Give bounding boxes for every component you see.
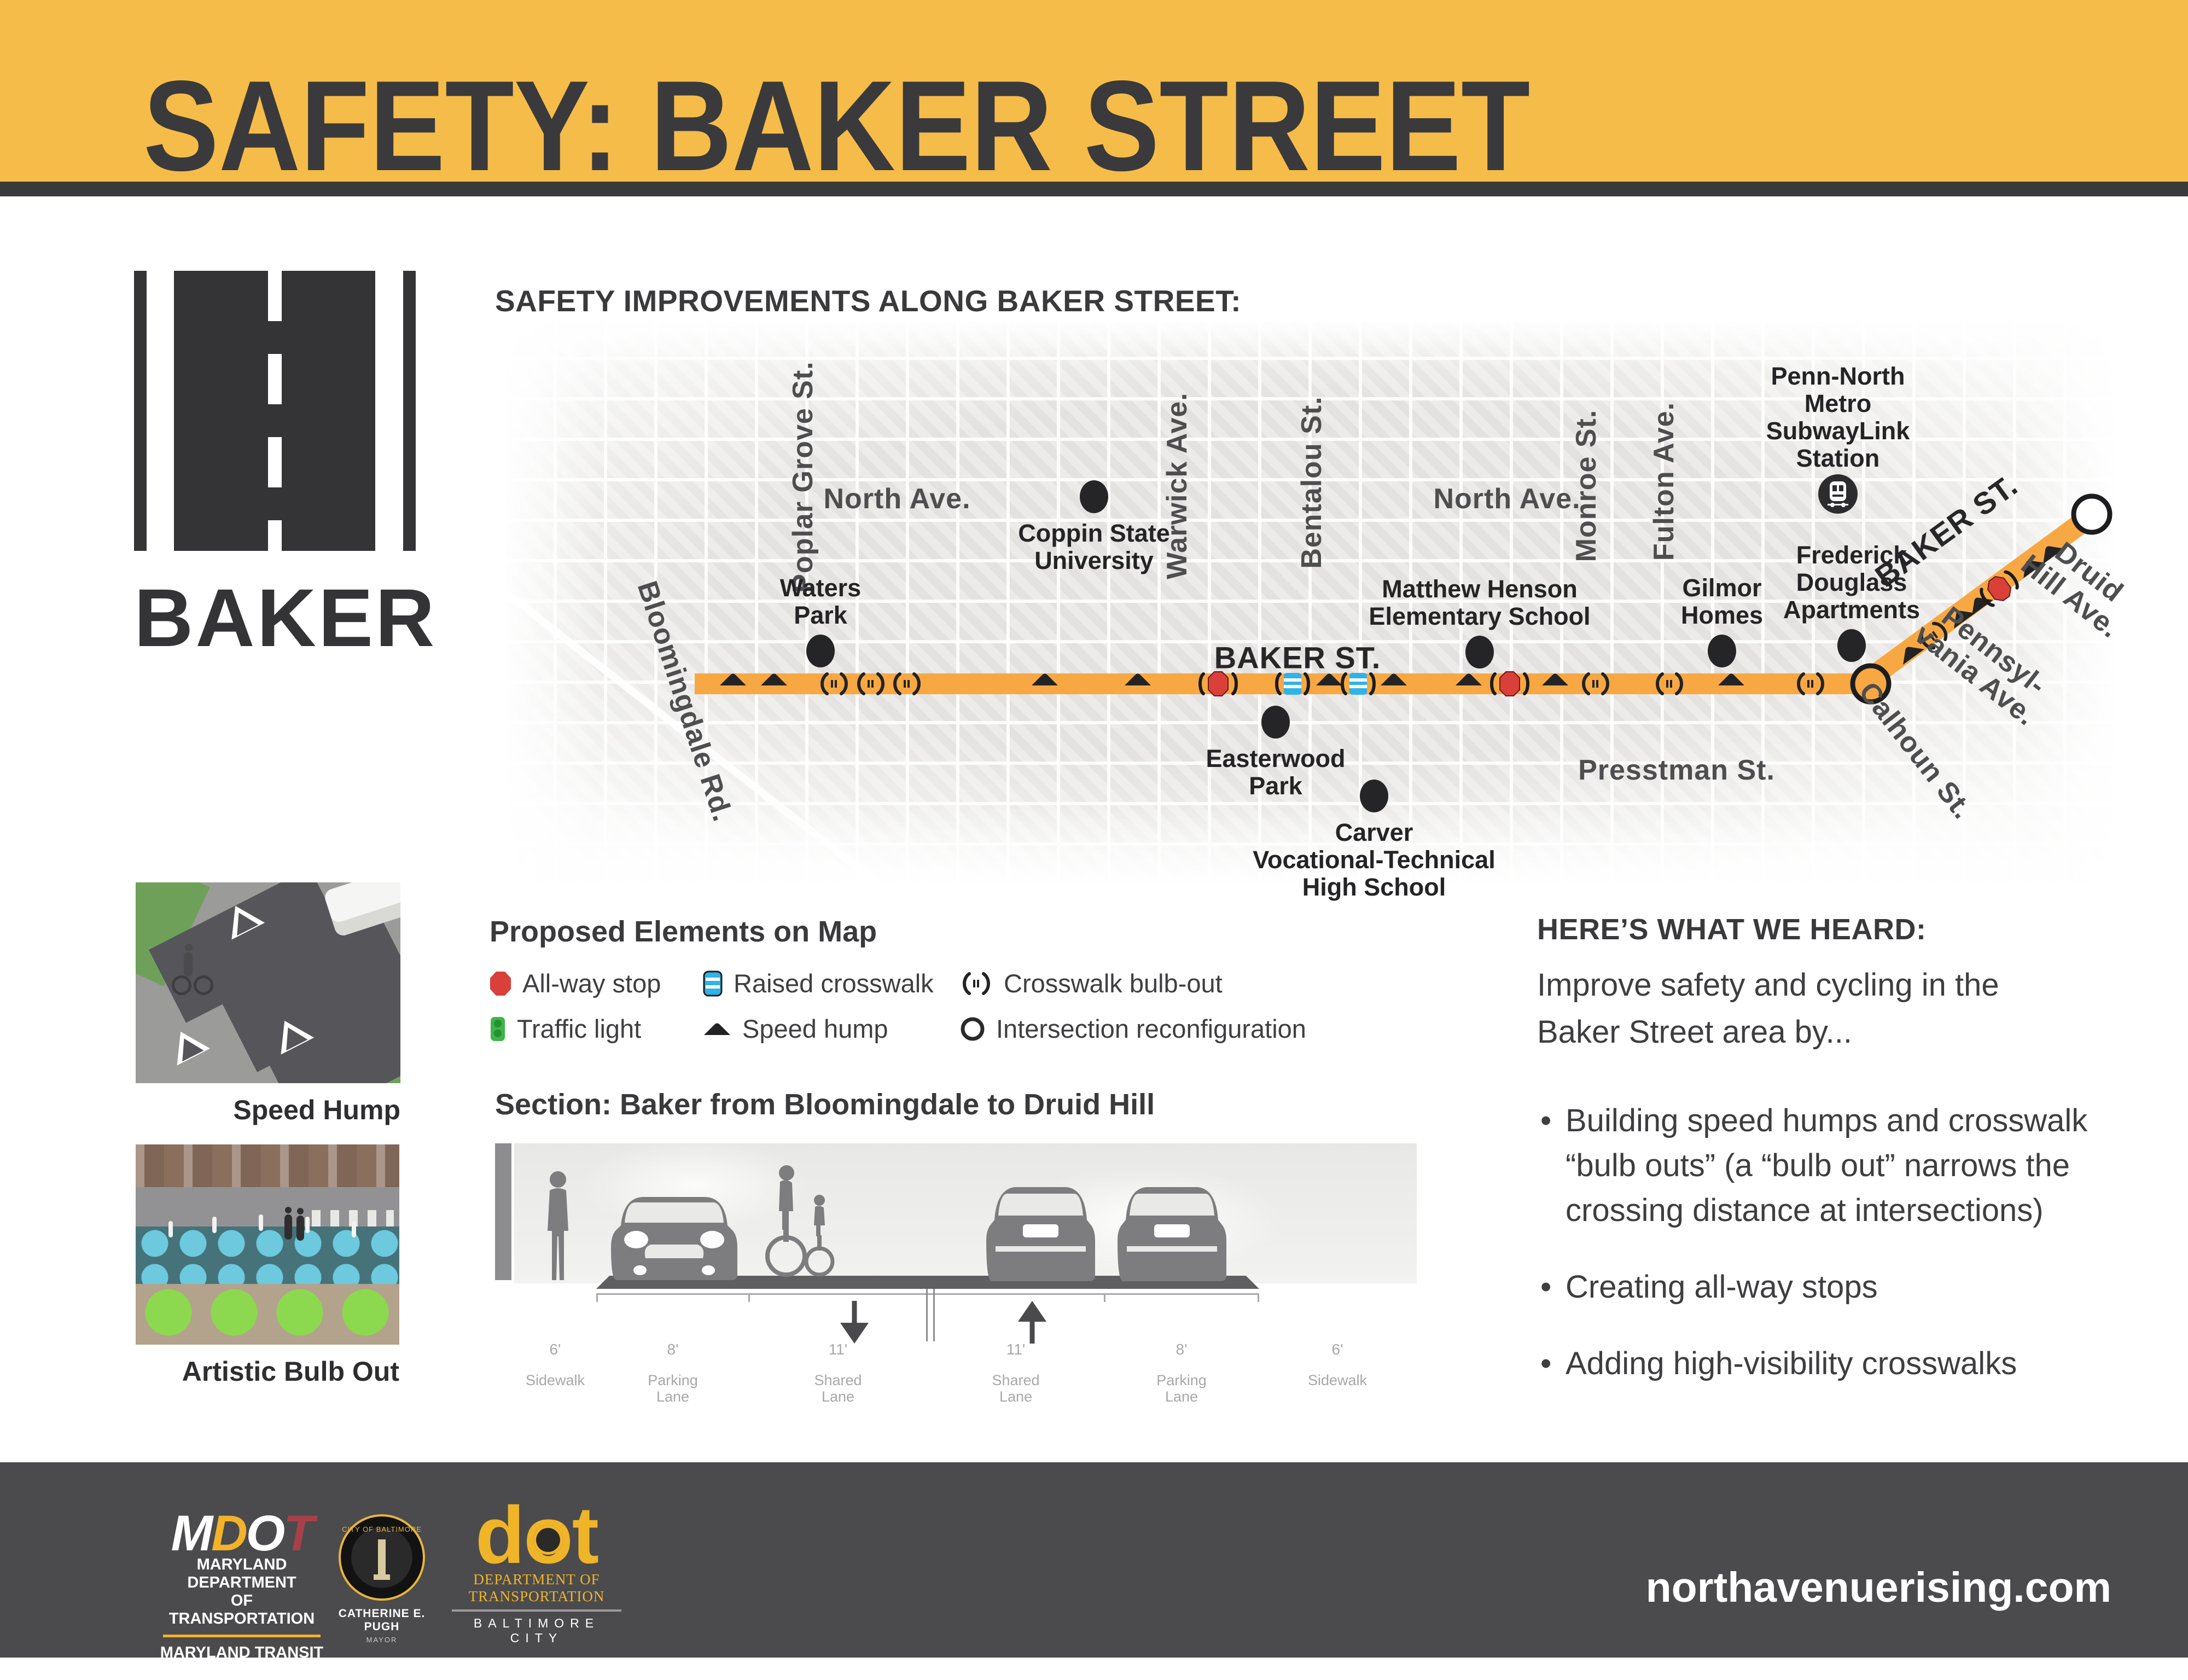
legend-label: Intersection reconfiguration bbox=[996, 1014, 1306, 1044]
green-dot-sidewalk bbox=[136, 1284, 399, 1345]
chevron-marking bbox=[164, 1023, 210, 1065]
all-way-stop-icon bbox=[490, 971, 511, 996]
footer-band bbox=[0, 1462, 2188, 1658]
legend-label: Raised crosswalk bbox=[734, 968, 934, 998]
city-seal-icon: CITY OF BALTIMORE bbox=[339, 1514, 425, 1601]
traffic-light-icon bbox=[490, 1016, 506, 1042]
lane-label: 11'Shared Lane bbox=[992, 1341, 1039, 1405]
dot-city-label: BALTIMORE CITY bbox=[452, 1616, 621, 1646]
lane-label: 6'Sidewalk bbox=[526, 1341, 585, 1388]
bollard bbox=[212, 1217, 217, 1233]
heard-intro: Improve safety and cycling in the Baker … bbox=[1537, 962, 2079, 1056]
raised-crosswalk-icon bbox=[703, 970, 723, 997]
baker-road-logo: BAKER bbox=[134, 271, 416, 659]
parked-car-silhouette bbox=[610, 1193, 738, 1283]
heard-bullet: Building speed humps and crosswalk “bulb… bbox=[1537, 1098, 2093, 1233]
mdot-logo: MDOT MARYLAND DEPARTMENTOF TRANSPORTATIO… bbox=[160, 1511, 324, 1680]
mayor-name: CATHERINE E. PUGH bbox=[338, 1607, 426, 1634]
buildings bbox=[136, 1144, 399, 1187]
artistic-bulb-out-photo bbox=[136, 1144, 399, 1345]
road-edge-line-right bbox=[403, 271, 416, 551]
road-center-dash bbox=[268, 271, 282, 551]
mdot-department-label: MARYLAND DEPARTMENTOF TRANSPORTATION bbox=[160, 1556, 324, 1628]
bike-wheel bbox=[172, 975, 191, 995]
direction-arrow-down bbox=[838, 1301, 871, 1344]
legend-items: All-way stopRaised crosswalkCrosswalk bu… bbox=[490, 968, 1452, 1044]
section-heading: Section: Baker from Bloomingdale to Drui… bbox=[495, 1088, 1155, 1121]
road-edge-line-left bbox=[134, 271, 147, 551]
bike-wheel bbox=[194, 975, 213, 995]
cyclist bbox=[184, 952, 193, 976]
lane-label: 6'Sidewalk bbox=[1308, 1341, 1367, 1388]
mdot-agency-label: MARYLAND TRANSITADMINISTRATION bbox=[160, 1644, 324, 1680]
website-link[interactable]: northavenuerising.com bbox=[1646, 1563, 2111, 1612]
pedestrian-silhouette bbox=[539, 1171, 577, 1283]
bollard bbox=[259, 1214, 263, 1231]
cyclist-silhouette bbox=[760, 1164, 842, 1283]
mdot-wordmark: MDOT bbox=[160, 1511, 324, 1556]
baker-logo-label: BAKER bbox=[134, 571, 416, 665]
direction-arrow-up bbox=[1016, 1301, 1049, 1344]
map-legend: Proposed Elements on Map All-way stopRai… bbox=[490, 915, 1452, 1044]
mayor-title: MAYOR bbox=[338, 1636, 426, 1644]
legend-label: All-way stop bbox=[522, 968, 661, 998]
legend-item-intersection-reconfiguration: Intersection reconfiguration bbox=[960, 1014, 1452, 1044]
blue-dot-plaza bbox=[136, 1226, 399, 1289]
bollard bbox=[168, 1221, 173, 1237]
legend-heading: Proposed Elements on Map bbox=[490, 915, 1452, 949]
speed-hump-caption: Speed Hump bbox=[136, 1094, 400, 1126]
legend-item-all-way-stop: All-way stop bbox=[490, 968, 703, 998]
section-left-block bbox=[495, 1143, 511, 1280]
speed-hump-icon bbox=[703, 1022, 731, 1036]
speed-hump-photo bbox=[136, 882, 400, 1083]
seal-ring-text: CITY OF BALTIMORE bbox=[341, 1525, 423, 1533]
legend-label: Traffic light bbox=[517, 1014, 641, 1044]
legend-label: Speed hump bbox=[742, 1014, 888, 1044]
pedestrian bbox=[296, 1216, 304, 1241]
monument-icon bbox=[378, 1539, 386, 1574]
road-icon bbox=[174, 271, 375, 551]
baltimore-city-seal: CITY OF BALTIMORE CATHERINE E. PUGH MAYO… bbox=[338, 1514, 426, 1644]
bollard bbox=[352, 1221, 356, 1237]
map-heading: SAFETY IMPROVEMENTS ALONG BAKER STREET: bbox=[495, 283, 1241, 318]
heard-heading: HERE’S WHAT WE HEARD: bbox=[1537, 912, 2131, 946]
bollard bbox=[305, 1217, 310, 1233]
heard-bullet: Creating all-way stops bbox=[1537, 1265, 2093, 1310]
page-title: SAFETY: BAKER STREET bbox=[143, 61, 1530, 190]
legend-label: Crosswalk bulb-out bbox=[1004, 968, 1223, 998]
legend-item-raised-crosswalk: Raised crosswalk bbox=[703, 968, 960, 998]
car-rear-silhouette bbox=[985, 1182, 1097, 1283]
dot-wordmark: dot bbox=[452, 1500, 621, 1571]
lane-label: 8'Parking Lane bbox=[1156, 1341, 1207, 1405]
intersection-reconfiguration-icon bbox=[960, 1016, 985, 1042]
lane-label: 8'Parking Lane bbox=[648, 1341, 698, 1405]
aerial-map bbox=[503, 322, 2117, 886]
lane-label: 11'Shared Lane bbox=[814, 1341, 862, 1405]
mdot-divider bbox=[163, 1635, 321, 1637]
heard-bullet: Adding high-visibility crosswalks bbox=[1537, 1341, 2093, 1386]
heard-bullet-list: Building speed humps and crosswalk “bulb… bbox=[1537, 1098, 2093, 1386]
baltimore-dot-logo: dot DEPARTMENT OF TRANSPORTATION BALTIMO… bbox=[452, 1500, 621, 1646]
what-we-heard: HERE’S WHAT WE HEARD: Improve safety and… bbox=[1537, 912, 2131, 1418]
white-car bbox=[323, 882, 400, 938]
legend-item-crosswalk-bulb-out: Crosswalk bulb-out bbox=[960, 968, 1452, 998]
artistic-bulb-out-caption: Artistic Bulb Out bbox=[136, 1356, 399, 1387]
legend-item-traffic-light: Traffic light bbox=[490, 1014, 703, 1044]
crosswalk-bulb-out-icon bbox=[960, 972, 993, 996]
pedestrian bbox=[284, 1214, 292, 1240]
section-center-pole bbox=[926, 1289, 935, 1341]
car-rear-silhouette bbox=[1116, 1182, 1228, 1283]
legend-item-speed-hump: Speed hump bbox=[703, 1014, 960, 1044]
